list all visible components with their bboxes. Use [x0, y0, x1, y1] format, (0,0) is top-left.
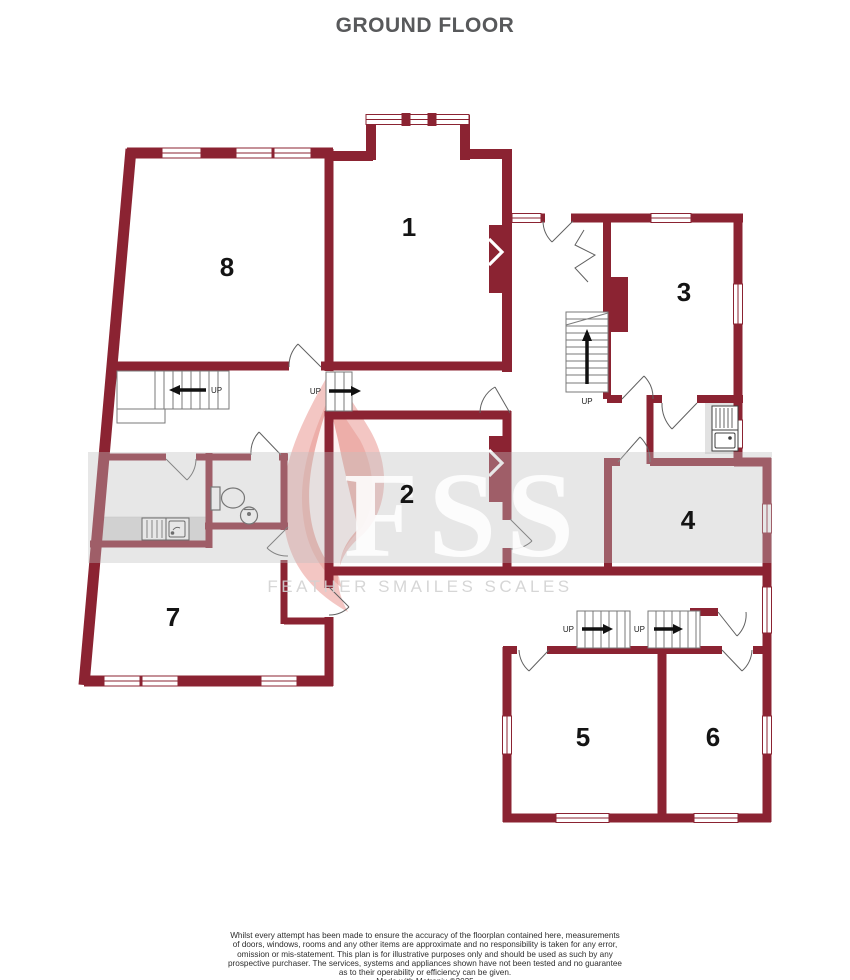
- door-arc: [251, 432, 281, 455]
- window: [236, 148, 311, 158]
- disclaimer: Whilst every attempt has been made to en…: [0, 931, 850, 980]
- door-arc: [519, 650, 549, 671]
- room-label-6: 6: [706, 722, 720, 752]
- lobby-stair: [117, 371, 229, 423]
- up-label-hallway: UP: [310, 387, 321, 396]
- opening-zigzag: [575, 230, 595, 282]
- door-arc: [718, 612, 746, 636]
- window: [104, 676, 178, 686]
- door-arc: [289, 344, 321, 367]
- window: [763, 587, 772, 633]
- window: [694, 814, 738, 823]
- front-door-arc: [543, 221, 573, 242]
- door-arc: [480, 387, 510, 413]
- room-label-5: 5: [576, 722, 590, 752]
- bay-window: [366, 114, 469, 126]
- doors: [166, 221, 752, 671]
- watermark-name: FEATHER SMAILES SCALES: [267, 577, 572, 596]
- door-arc: [662, 403, 697, 429]
- disclaimer-line: Whilst every attempt has been made to en…: [0, 931, 850, 940]
- stair-arrow-right-icon: [351, 386, 361, 396]
- window: [734, 284, 743, 324]
- window: [651, 214, 691, 223]
- room-label-3: 3: [677, 277, 691, 307]
- door-arc: [722, 650, 752, 671]
- rear-stair-right: [648, 611, 700, 648]
- window: [763, 716, 772, 754]
- hallway-step: [326, 372, 361, 411]
- window: [162, 148, 201, 158]
- room-label-8: 8: [220, 252, 234, 282]
- rear-stair-left: [577, 611, 630, 648]
- disclaimer-line: prospective purchaser. The services, sys…: [0, 959, 850, 968]
- disclaimer-line: as to their operability or efficiency ca…: [0, 968, 850, 977]
- disclaimer-line: omission or mis-statement. This plan is …: [0, 950, 850, 959]
- watermark-initials: FSS: [344, 448, 584, 583]
- window: [556, 814, 609, 823]
- up-label-lobby: UP: [211, 386, 222, 395]
- up-label-rear-left: UP: [563, 625, 574, 634]
- floorplan-drawing: FSS FEATHER SMAILES SCALES 1 2 3 4 5 6 7…: [0, 0, 850, 980]
- room-label-7: 7: [166, 602, 180, 632]
- utility-sink-icon: [712, 406, 738, 451]
- room-label-1: 1: [402, 212, 416, 242]
- main-hall-stair: [566, 312, 608, 392]
- room-label-2: 2: [400, 479, 414, 509]
- floorplan-page: GROUND FLOOR: [0, 0, 850, 980]
- up-label-rear-right: UP: [634, 625, 645, 634]
- chimney-breast-room1: [489, 225, 508, 293]
- up-label-main: UP: [581, 397, 592, 406]
- room-label-4: 4: [681, 505, 696, 535]
- disclaimer-line: of doors, windows, rooms and any other i…: [0, 940, 850, 949]
- window: [512, 214, 541, 223]
- window: [261, 676, 297, 686]
- window: [503, 716, 512, 754]
